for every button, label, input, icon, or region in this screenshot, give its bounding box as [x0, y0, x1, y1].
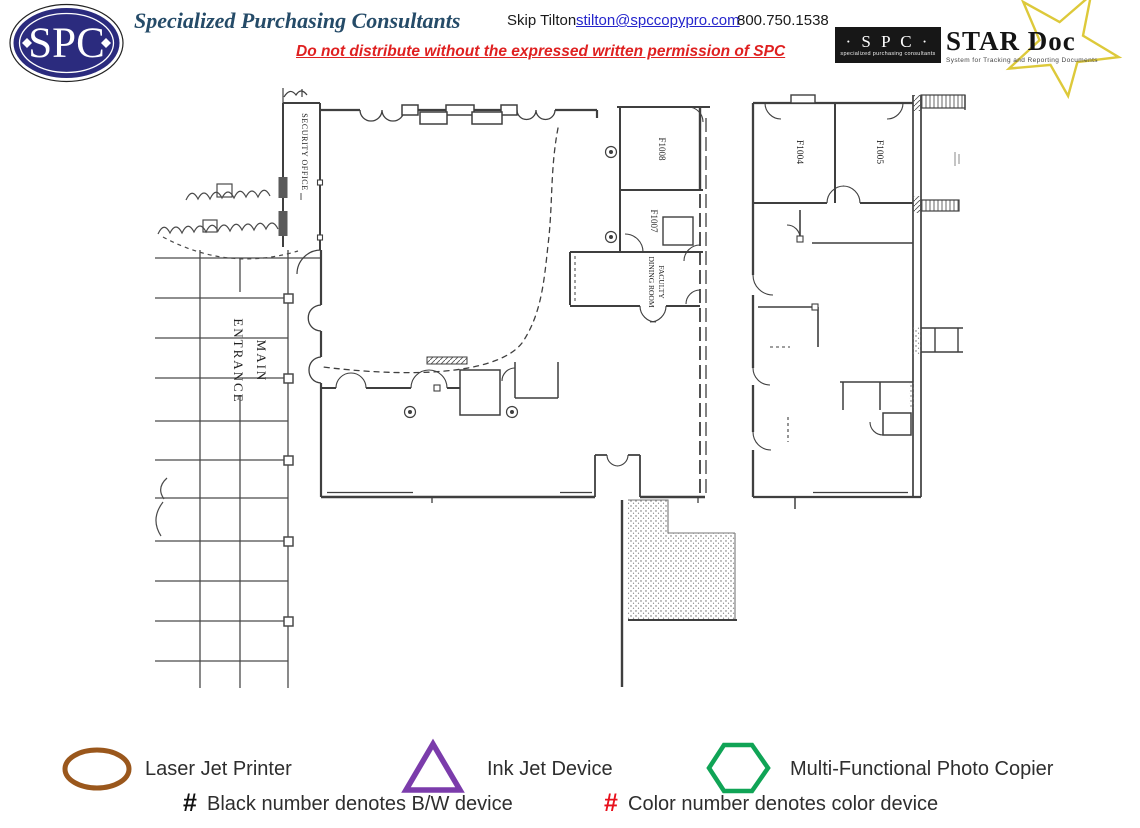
- stardoc-badge-subtext: specialized purchasing consultants: [835, 52, 941, 58]
- stardoc-subtitle: System for Tracking and Reporting Docume…: [946, 57, 1098, 64]
- room-label-f1007: F1007: [649, 209, 659, 233]
- room-label-f1004: F1004: [794, 140, 804, 165]
- spc-logo: SPC: [10, 5, 123, 82]
- walkway-grid: [155, 184, 320, 688]
- faculty-dining-label-line2: DINING ROOM: [647, 256, 656, 307]
- contact-name: Skip Tilton: [507, 12, 576, 29]
- security-office-label: SECURITY OFFICE: [300, 113, 309, 190]
- legend-label-laser-jet: Laser Jet Printer: [145, 758, 292, 781]
- faculty-dining-label-line1: FACULTY: [657, 265, 666, 299]
- stardoc-title: STAR Doc: [946, 26, 1076, 57]
- scanned-floorplan-page: SPC MAIN ENTRANCE: [0, 0, 1140, 828]
- legend-label-photo-copier: Multi-Functional Photo Copier: [790, 758, 1053, 781]
- laser-jet-oval-icon: [65, 750, 129, 788]
- right-building: [753, 95, 965, 509]
- legend-note-bw: Black number denotes B/W device: [207, 793, 513, 816]
- room-label-f1005: F1005: [874, 140, 884, 165]
- bw-hash-icon: #: [183, 789, 197, 818]
- column-markers: [405, 147, 617, 418]
- main-entrance-label-line2: ENTRANCE: [231, 318, 246, 403]
- patio-area: [622, 500, 737, 687]
- legend-note-color: Color number denotes color device: [628, 793, 938, 816]
- distribution-warning: Do not distribute without the expressed …: [296, 43, 785, 61]
- ink-jet-triangle-icon: [406, 744, 460, 790]
- spc-logo-text: SPC: [28, 20, 105, 67]
- color-hash-icon: #: [604, 789, 618, 818]
- stardoc-badge-text: · S P C ·: [835, 33, 941, 50]
- company-title: Specialized Purchasing Consultants: [134, 8, 460, 34]
- floor-plan-drawing: SPC MAIN ENTRANCE: [0, 0, 1140, 828]
- photo-copier-hexagon-icon: [709, 745, 768, 791]
- legend-label-ink-jet: Ink Jet Device: [487, 758, 613, 781]
- room-label-f1008: F1008: [657, 137, 667, 161]
- contact-phone: 800.750.1538: [737, 12, 829, 29]
- main-entrance-label-line1: MAIN: [254, 340, 269, 383]
- contact-email-link[interactable]: stilton@spccopypro.com: [576, 12, 740, 29]
- stardoc-spc-badge: · S P C · specialized purchasing consult…: [835, 27, 941, 63]
